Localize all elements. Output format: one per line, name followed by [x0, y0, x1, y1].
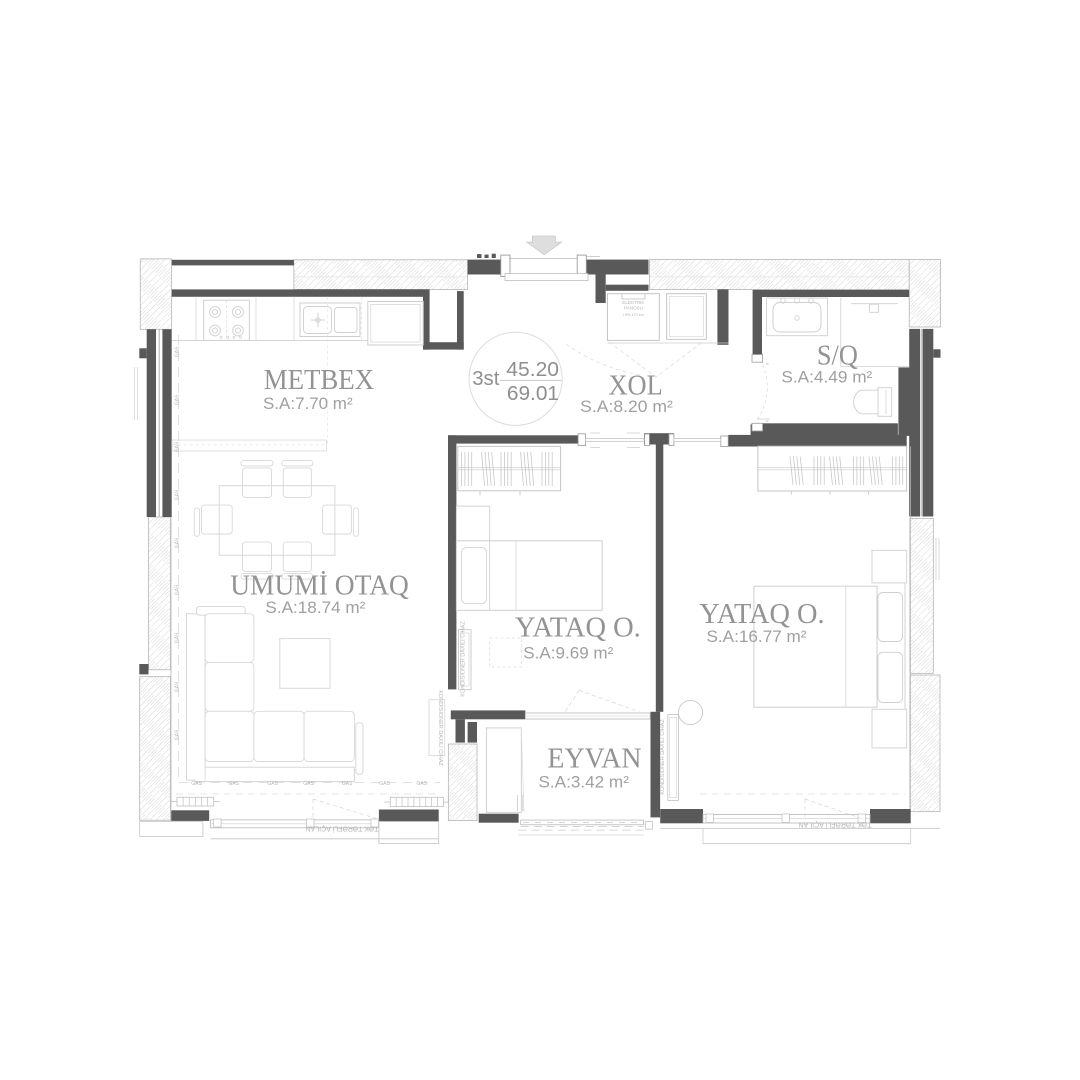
svg-text:S.A:4.49 m²: S.A:4.49 m² [781, 369, 873, 387]
svg-text:METBEX: METBEX [264, 365, 374, 396]
svg-text:GAS: GAS [342, 781, 353, 787]
svg-text:GAS: GAS [175, 346, 181, 357]
svg-text:GAS: GAS [175, 729, 181, 740]
svg-text:S.A:9.69 m²: S.A:9.69 m² [523, 644, 614, 662]
svg-text:UMUMİ OTAQ: UMUMİ OTAQ [230, 571, 409, 602]
svg-text:GAS: GAS [175, 441, 181, 452]
svg-text:KONDISIONER DAXILI CIHAZ: KONDISIONER DAXILI CIHAZ [437, 690, 443, 766]
svg-text:HPA 170 sm: HPA 170 sm [623, 313, 644, 317]
svg-text:S/Q: S/Q [817, 341, 858, 372]
svg-text:S.A:3.42 m²: S.A:3.42 m² [539, 773, 630, 791]
svg-text:69.01: 69.01 [507, 383, 559, 405]
svg-text:GAS: GAS [175, 632, 181, 643]
svg-text:GAS: GAS [175, 681, 181, 692]
svg-text:GAS: GAS [175, 584, 181, 595]
svg-text:KONDISIONER DAXILI CIHAZ: KONDISIONER DAXILI CIHAZ [660, 719, 666, 795]
svg-text:GAS: GAS [267, 781, 278, 787]
svg-text:3st: 3st [472, 368, 500, 390]
svg-text:S.A:16.77 m²: S.A:16.77 m² [707, 628, 808, 646]
svg-text:ELEKTRIK: ELEKTRIK [622, 300, 645, 305]
svg-text:S.A:18.74 m²: S.A:18.74 m² [265, 599, 366, 617]
svg-text:XOL: XOL [609, 371, 663, 402]
svg-text:GAS: GAS [379, 781, 390, 787]
svg-text:S.A:8.20 m²: S.A:8.20 m² [580, 398, 673, 416]
svg-text:GAS: GAS [191, 781, 202, 787]
svg-text:S.A:7.70 m²: S.A:7.70 m² [263, 395, 353, 413]
svg-text:GAS: GAS [175, 489, 181, 500]
svg-text:EYVAN: EYVAN [547, 743, 641, 774]
svg-text:GAS: GAS [417, 781, 428, 787]
svg-text:GAS: GAS [175, 537, 181, 548]
svg-text:GAS: GAS [175, 394, 181, 405]
svg-text:YATAQ O.: YATAQ O. [699, 599, 824, 630]
svg-text:GAS: GAS [303, 781, 314, 787]
svg-text:YATAQ O.: YATAQ O. [515, 613, 641, 644]
svg-text:GAS: GAS [229, 781, 240, 787]
svg-text:PANOSU: PANOSU [624, 306, 643, 311]
svg-text:TƏK TƏRƏFLİ AÇILAN: TƏK TƏRƏFLİ AÇILAN [306, 825, 379, 834]
svg-text:KONDISIONER DAXILI CIHAZ: KONDISIONER DAXILI CIHAZ [461, 621, 467, 697]
svg-text:TƏK TƏRƏFLİ AÇILAN: TƏK TƏRƏFLİ AÇILAN [799, 821, 872, 830]
svg-text:45.20: 45.20 [506, 359, 559, 381]
